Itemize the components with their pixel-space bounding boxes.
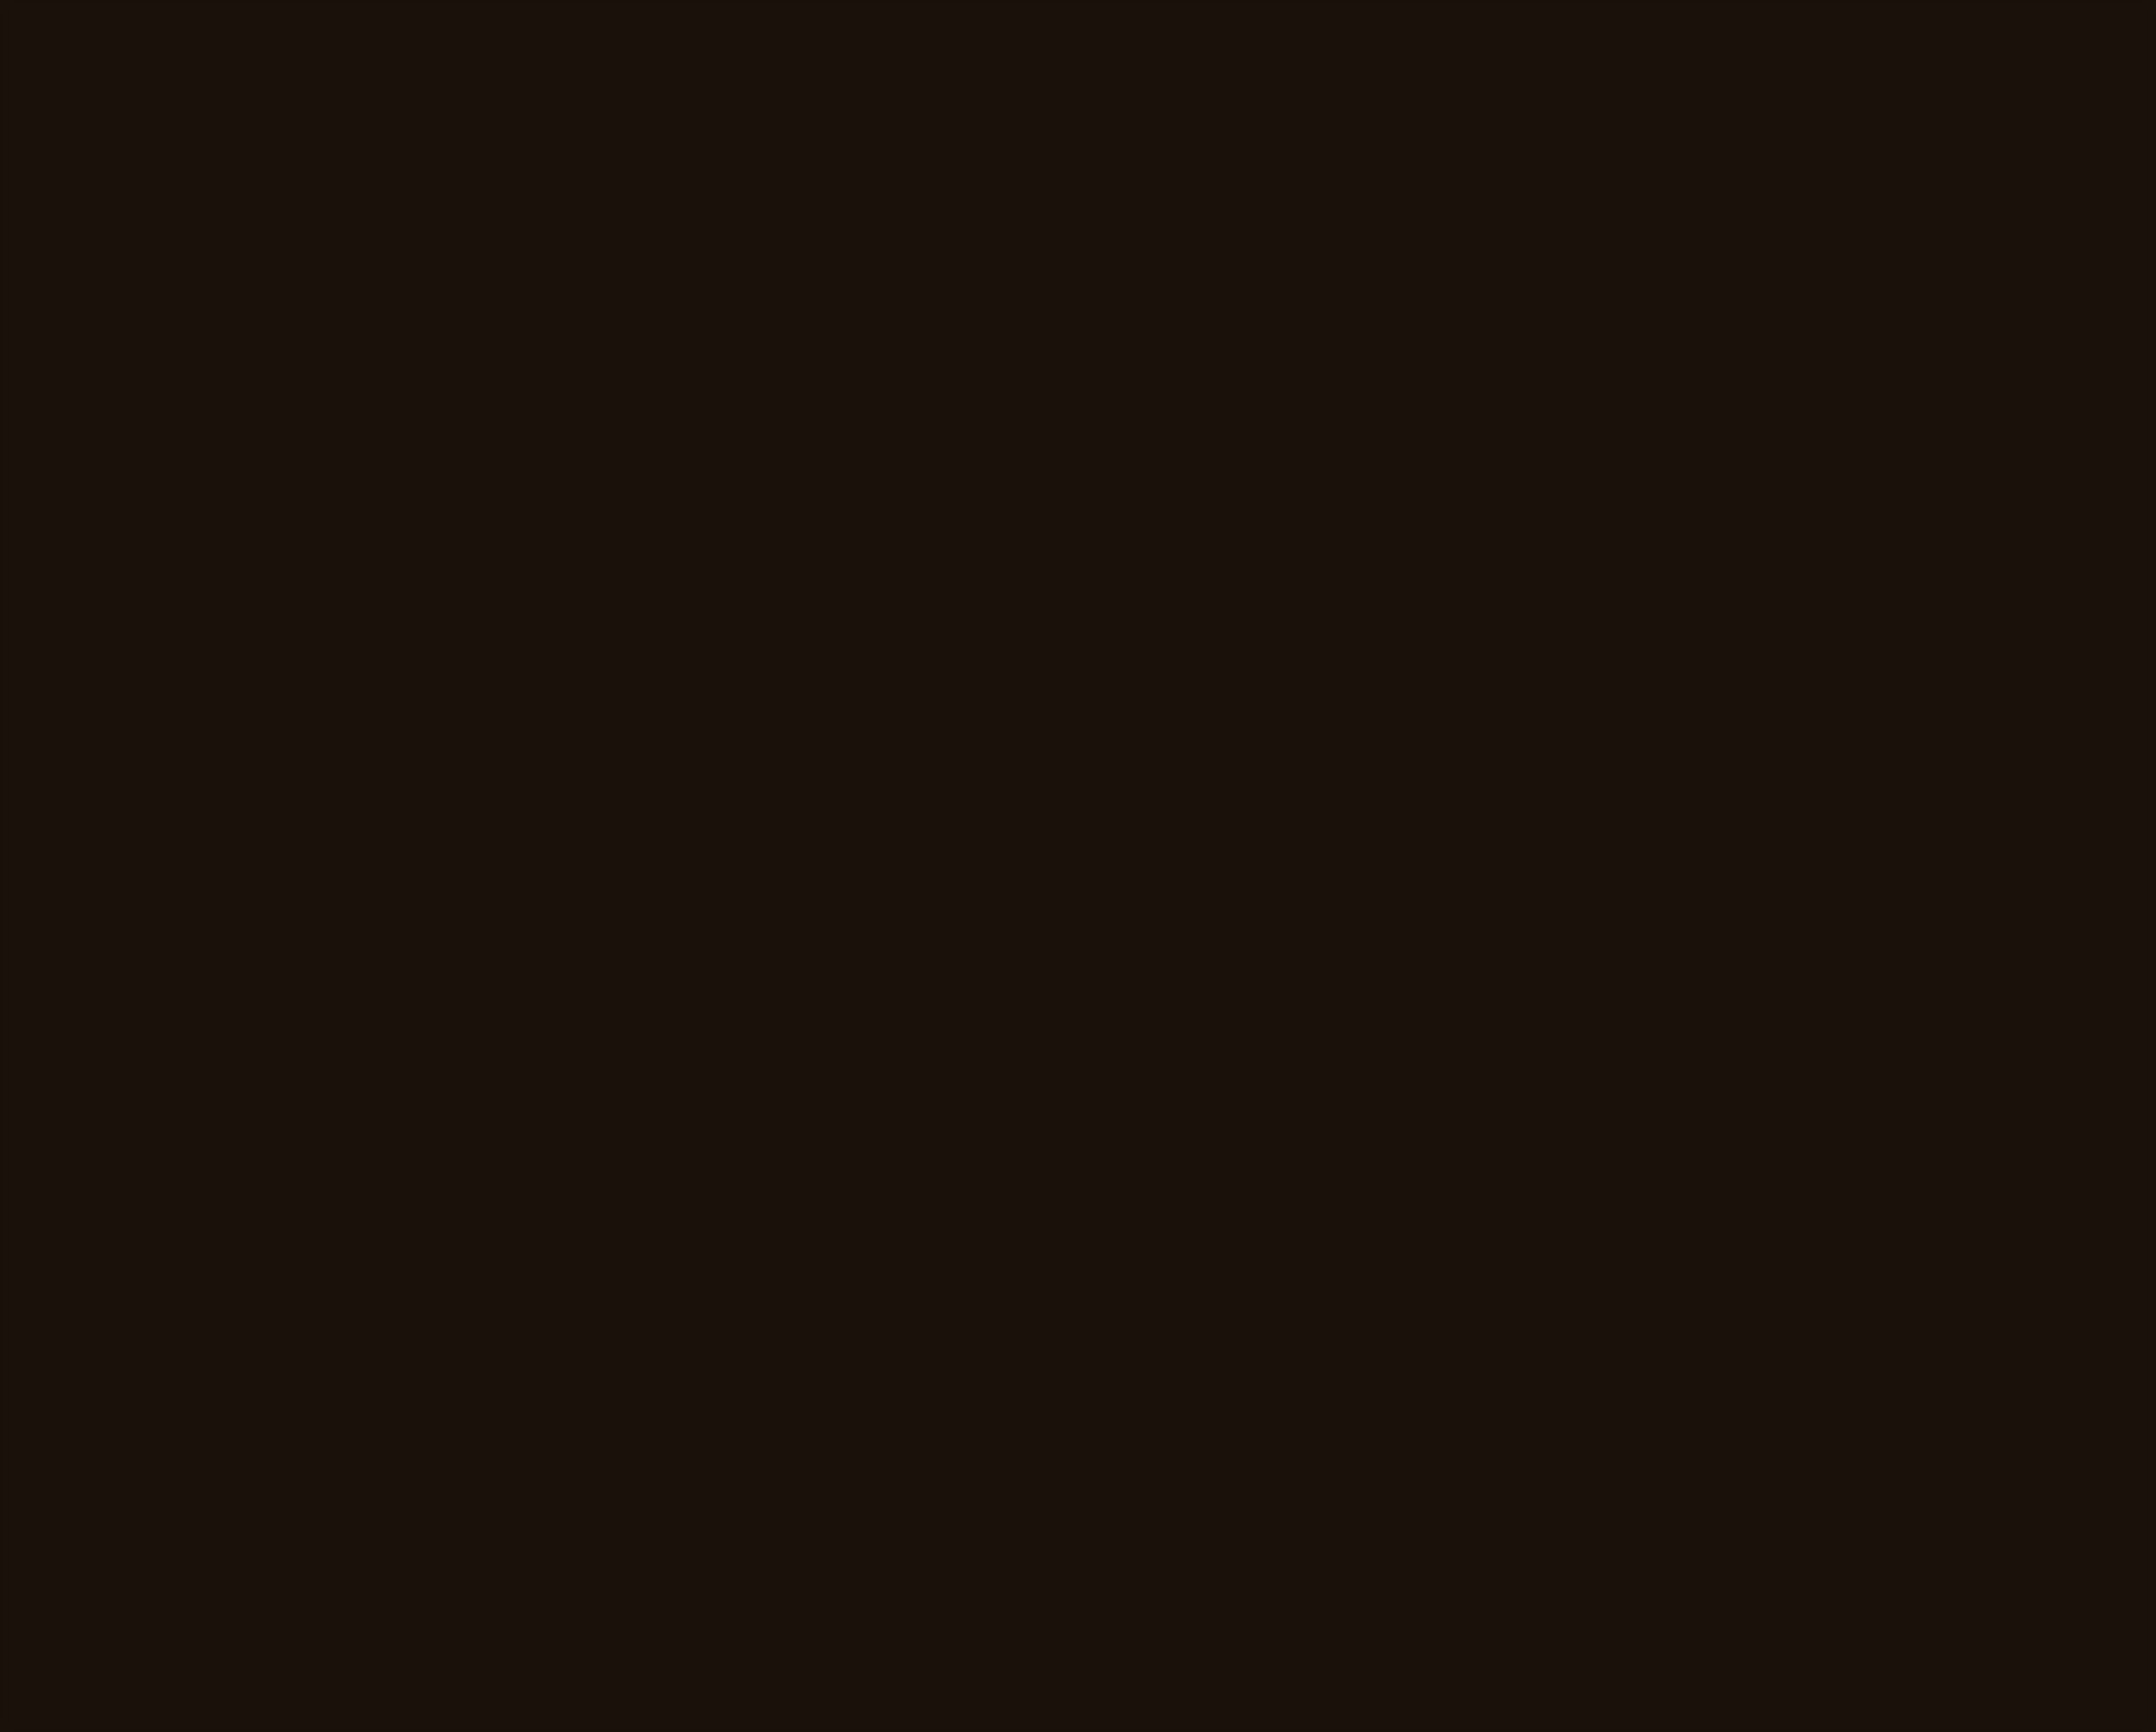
photo-scene: LIVING ROOM TOILET BATH D2 BED ROOM 14'x… [0, 0, 2156, 1732]
vignette [0, 0, 2156, 1732]
